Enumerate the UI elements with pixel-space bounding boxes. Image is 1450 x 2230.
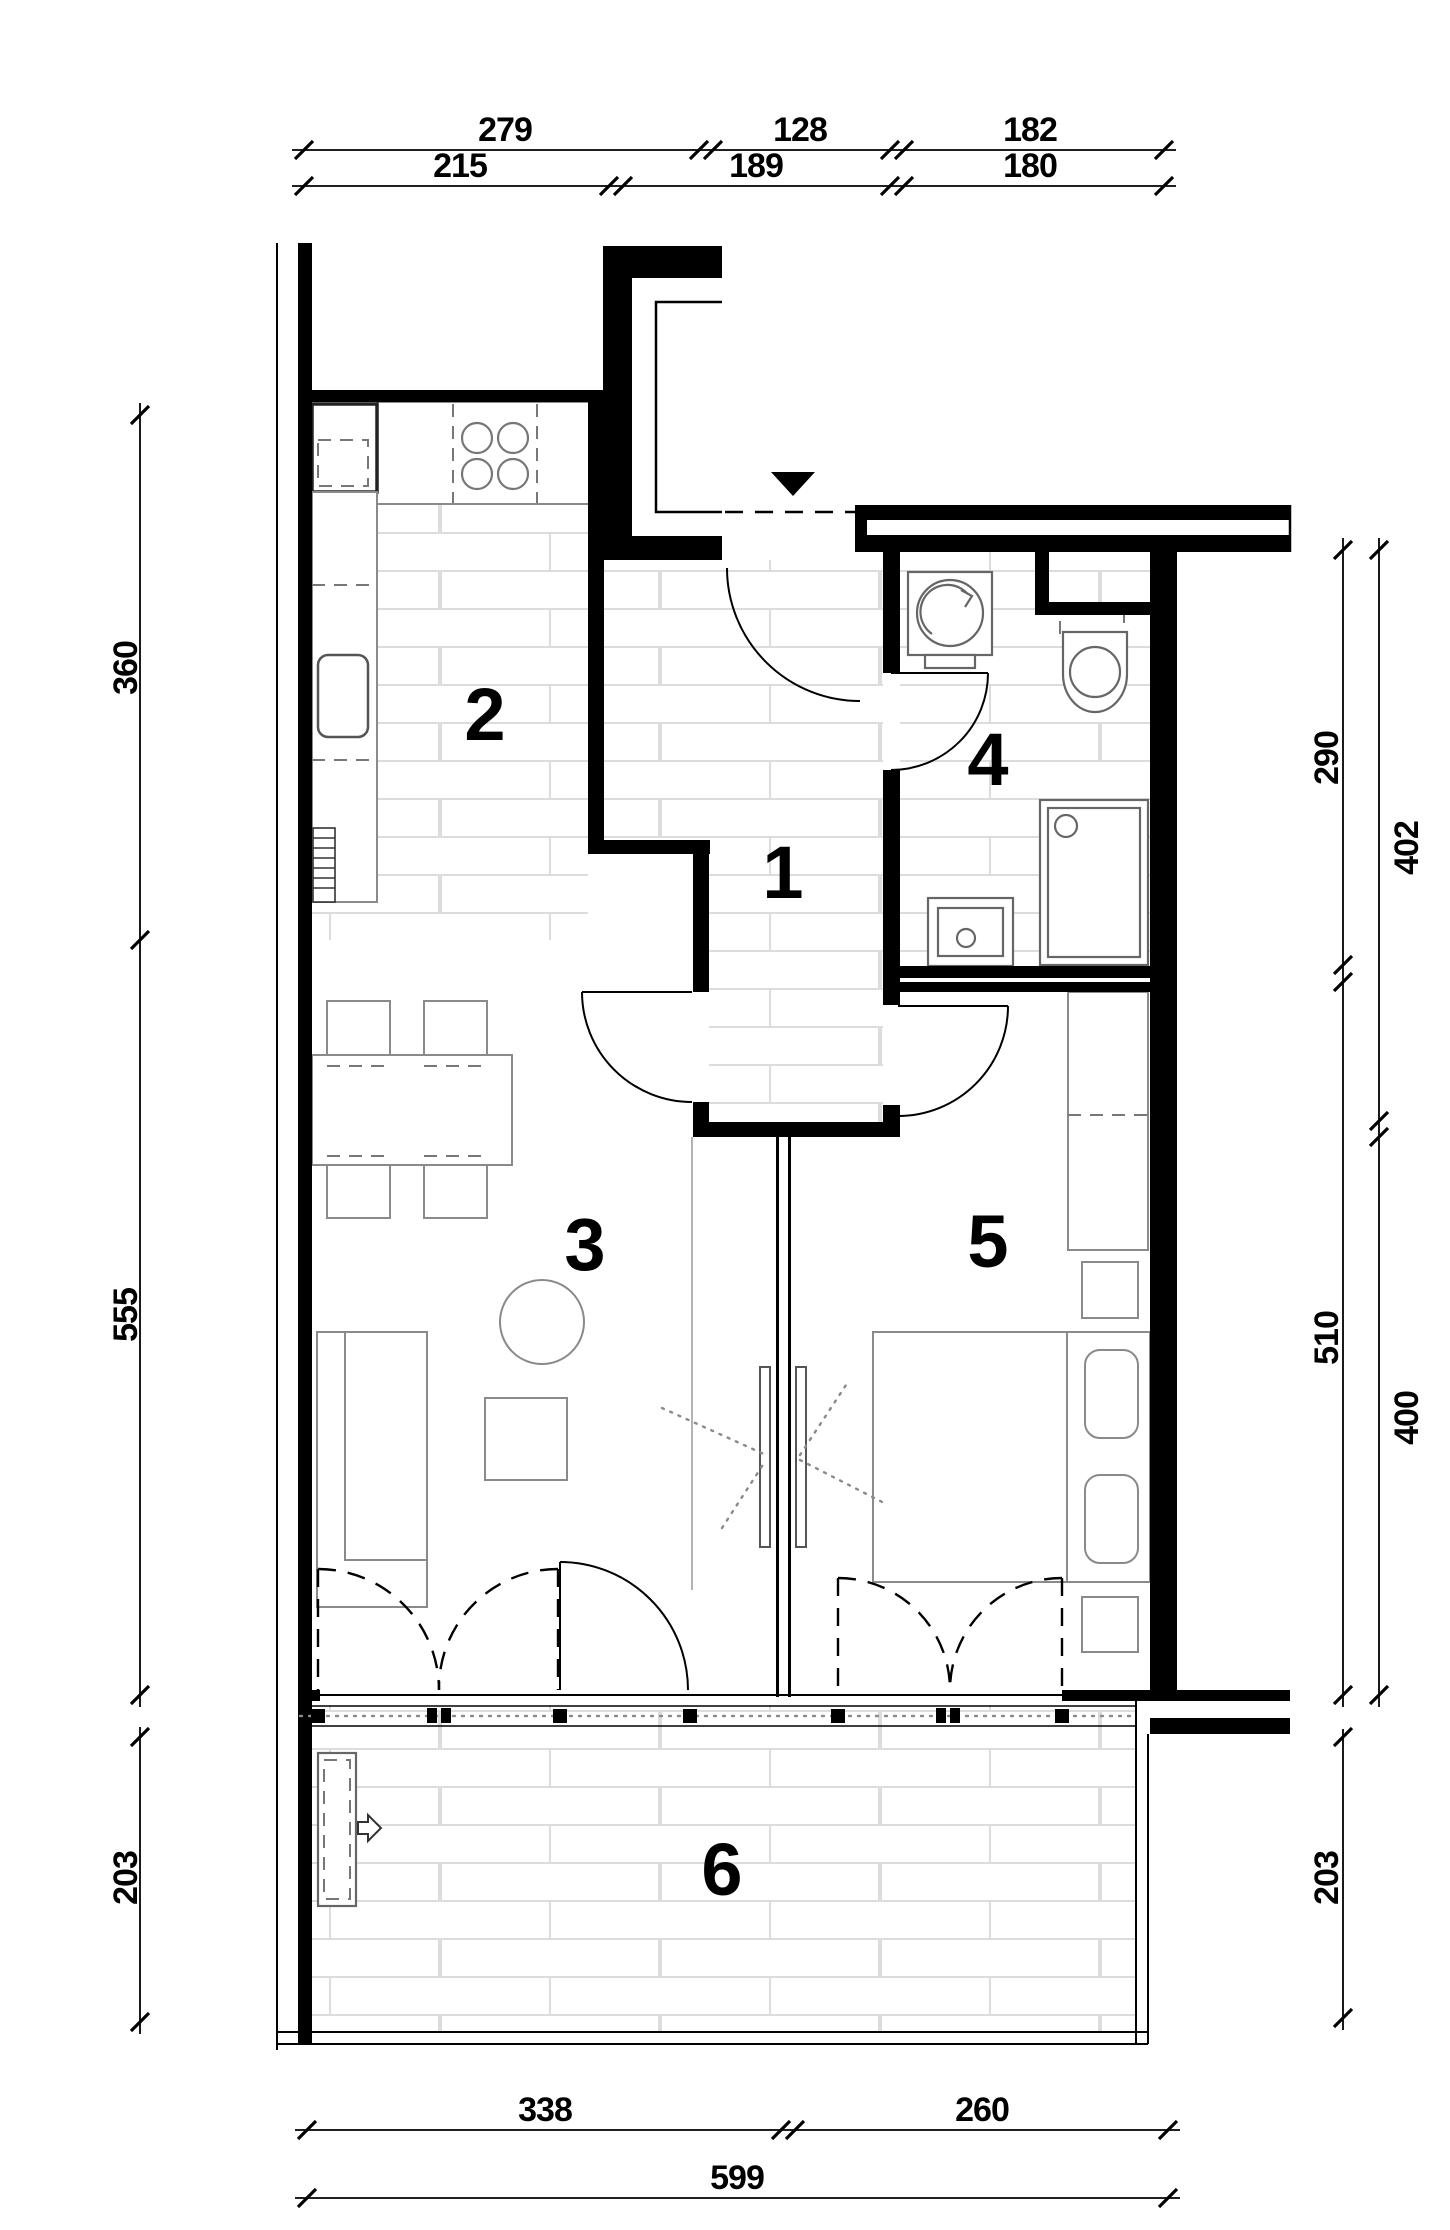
sofa-outline: [317, 1332, 427, 1607]
shaft-bottom-wall: [603, 536, 722, 560]
glass-marking-dotted: [662, 1385, 888, 1528]
dim-right-400: 400: [1388, 1391, 1426, 1445]
dim-bottom-260: 260: [955, 2091, 1009, 2129]
living-balcony-single-door: [560, 1562, 688, 1690]
balcony-wall-left-stub: [298, 1690, 320, 1701]
toilet-bowl-circle: [1070, 647, 1120, 697]
bedroom-balcony-french-doors: [838, 1578, 1062, 1690]
balcony-party-wall-lower: [1150, 1718, 1290, 1734]
nightstand-bottom: [1082, 1597, 1138, 1652]
kitchen-top-wall: [307, 390, 604, 402]
bedroom-furniture: [873, 992, 1150, 1652]
coffee-table: [485, 1398, 567, 1480]
tiled-floors: [312, 505, 1150, 2032]
floor-plan-drawing: 279 128 182 215 189 180 360 555 203 290 …: [0, 0, 1450, 2230]
living-room-door: [582, 992, 692, 1102]
shaft-left-wall: [603, 246, 632, 560]
kitchen-hall-wall: [588, 402, 604, 852]
hall-left-wall: [693, 854, 709, 992]
bedroom-top-wall: [898, 982, 1152, 992]
room-label-bathroom: 4: [967, 718, 1008, 801]
dim-left-203: 203: [107, 1851, 145, 1905]
side-table-round: [500, 1280, 584, 1364]
bathroom-left-wall-lower: [883, 770, 900, 966]
room-label-balcony: 6: [701, 1828, 742, 1911]
right-exterior-wall: [1150, 545, 1177, 1697]
kitchen-sink-icon: [318, 655, 368, 737]
dim-right-402: 402: [1388, 821, 1426, 875]
bedroom-door: [898, 1006, 1008, 1116]
room-label-hall: 1: [762, 831, 803, 914]
dining-table: [312, 1055, 512, 1165]
living-balcony-french-doors: [318, 1569, 558, 1690]
dim-top-128: 128: [773, 111, 827, 149]
kitchen-floor-tiles-strip: [312, 902, 377, 940]
bathroom-left-wall-upper: [883, 552, 900, 673]
washing-machine-base: [925, 655, 975, 668]
dining-chair: [424, 1001, 487, 1061]
dim-right-203: 203: [1308, 1851, 1346, 1905]
bathroom-bottom-wall: [883, 966, 1152, 978]
dining-chair: [327, 1001, 390, 1061]
dining-chair: [424, 1158, 487, 1218]
room-label-kitchen: 2: [464, 673, 505, 756]
sofa-seat-line: [345, 1332, 427, 1560]
glass-panel-left: [760, 1367, 770, 1547]
shaft-inner-lining: [656, 302, 722, 512]
hall-right-wall-upper: [883, 978, 900, 1005]
glass-panel-right: [796, 1367, 806, 1547]
hall-jog-wall: [588, 840, 710, 854]
dim-left-555: 555: [107, 1288, 145, 1342]
pillow-icon: [1085, 1350, 1138, 1438]
dining-chair: [327, 1158, 390, 1218]
washbasin-drain: [957, 929, 975, 947]
floor-plan-canvas: 279 128 182 215 189 180 360 555 203 290 …: [0, 0, 1450, 2230]
pillow-icon: [1085, 1475, 1138, 1563]
room-label-bedroom: 5: [967, 1200, 1008, 1283]
dim-bottom-599: 599: [710, 2159, 764, 2197]
wardrobe: [1068, 992, 1148, 1250]
nightstand-top: [1082, 1262, 1138, 1318]
sliding-glass-partition: [662, 1137, 888, 1697]
top-right-wall-outer: [857, 505, 1290, 520]
hall-right-wall-lower: [883, 1105, 900, 1137]
room-label-living: 3: [564, 1203, 605, 1286]
dim-top-215: 215: [433, 147, 487, 185]
toilet-niche-wall-h: [1035, 602, 1152, 615]
balcony-wall-right-segment: [1062, 1690, 1290, 1701]
dim-top-279: 279: [478, 111, 532, 149]
dim-top-180: 180: [1003, 147, 1057, 185]
dim-right-510: 510: [1308, 1311, 1346, 1365]
top-right-wall-inner: [857, 535, 1290, 552]
dim-bottom-338: 338: [518, 2091, 572, 2129]
entrance-arrow-icon: [771, 472, 815, 496]
dim-left-360: 360: [107, 641, 145, 695]
shower-drain: [1055, 815, 1077, 837]
left-wall: [298, 243, 312, 2043]
entrance-right-jamb: [855, 505, 867, 552]
dim-top-189: 189: [729, 147, 783, 185]
radiator-icon: [313, 828, 335, 902]
kitchen-counter-top: [377, 402, 604, 504]
living-room-furniture: [312, 1001, 584, 1607]
hall-bottom-wall: [693, 1122, 900, 1137]
dim-top-182: 182: [1003, 111, 1057, 149]
dim-right-290: 290: [1308, 731, 1346, 785]
